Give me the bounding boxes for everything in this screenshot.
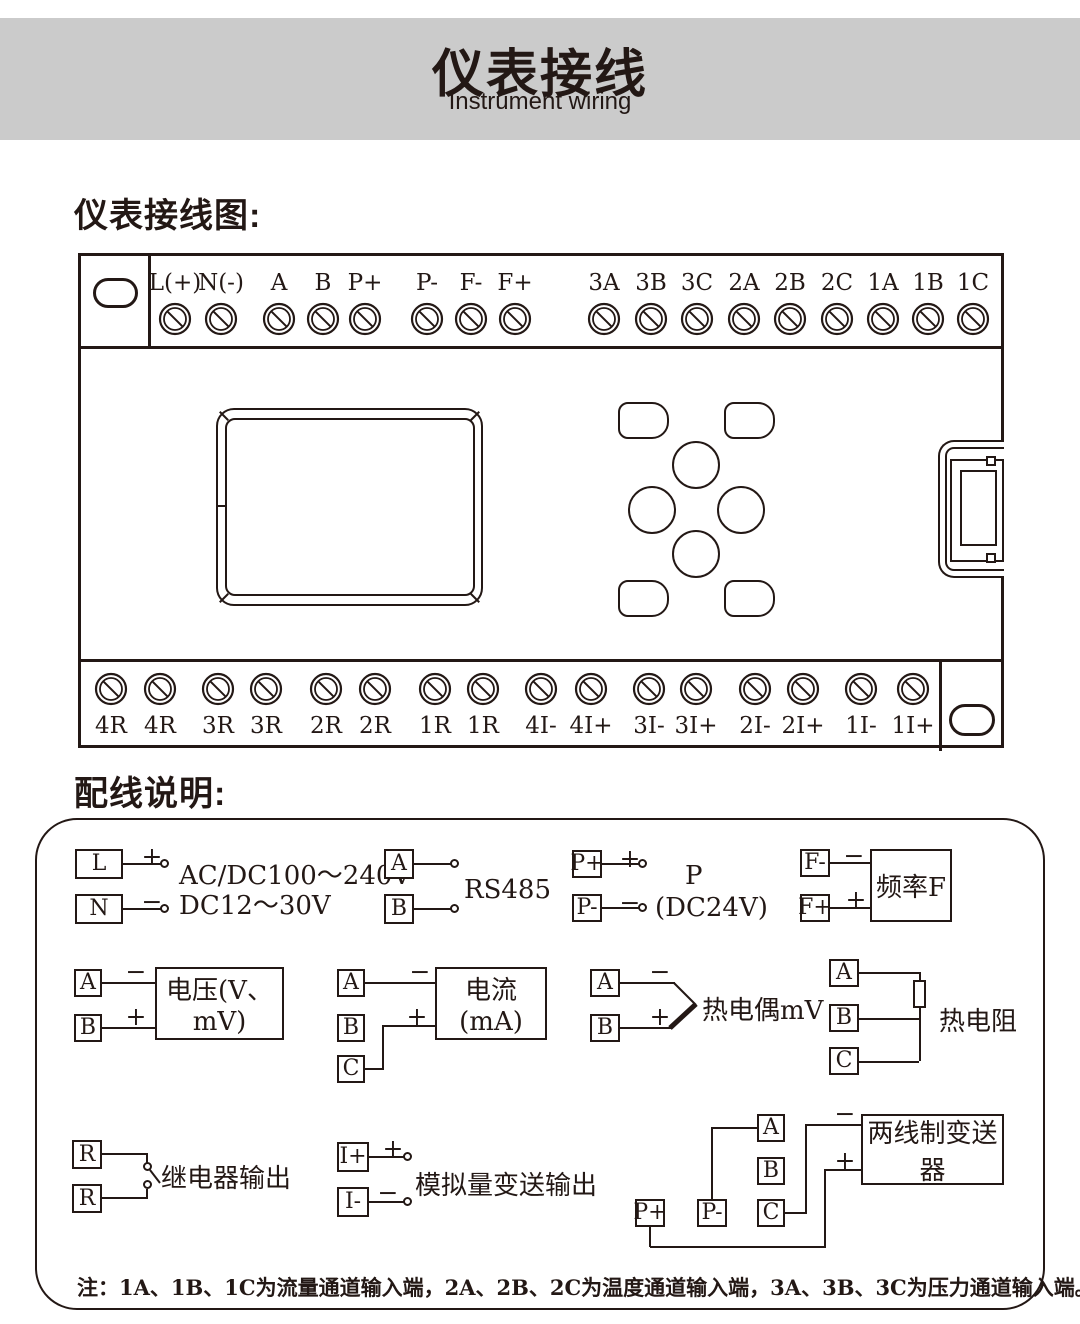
wire <box>102 1153 148 1155</box>
wire <box>414 863 454 865</box>
screw-terminal-icon <box>94 672 128 706</box>
keypad-round-button-down <box>672 530 720 578</box>
resistor-symbol <box>913 980 926 1008</box>
wire-end-node <box>403 1197 412 1206</box>
screw-terminal-icon <box>204 302 238 336</box>
screw-terminal-icon <box>773 302 807 336</box>
plus-sign: + <box>121 1004 151 1029</box>
power-range-line1: AC/DC100～240V <box>179 862 411 892</box>
minus-sign: − <box>121 959 151 984</box>
bottom-terminals: 4R4R3R3R2R2R1R1R4I-4I+3I-3I+2I-2I+1I-1I+ <box>81 660 1001 751</box>
plus-sign: + <box>615 846 645 871</box>
wire <box>414 908 454 910</box>
minus-sign: − <box>373 1180 403 1205</box>
terminal-label: 1I+ <box>885 712 941 740</box>
terminal-box-B: B <box>829 1004 859 1032</box>
wiring-heading: 配线说明: <box>74 766 226 815</box>
terminal-box-I-plus: I+ <box>337 1142 369 1172</box>
terminal-box-F-plus: F+ <box>800 894 830 922</box>
plus-sign: + <box>402 1004 432 1029</box>
screw-terminal-icon <box>201 672 235 706</box>
terminal-label: 1R <box>455 712 511 740</box>
screw-terminal-icon <box>786 672 820 706</box>
terminal-box-C: C <box>757 1199 785 1227</box>
plus-sign: + <box>841 887 871 912</box>
terminal-bottom-15: 1I+ <box>885 660 941 740</box>
top-strip-divider-line <box>81 346 1001 349</box>
terminal-top-7: F+ <box>487 256 543 336</box>
screw-terminal-icon <box>249 672 283 706</box>
screw-terminal-icon <box>679 672 713 706</box>
terminal-box-F-minus: F- <box>800 849 830 877</box>
p24-line2: (DC24V) <box>655 894 768 924</box>
terminal-bottom-11: 3I+ <box>668 660 724 740</box>
terminal-label: 2R <box>347 712 403 740</box>
wire <box>805 1125 807 1214</box>
terminal-label: F+ <box>487 269 543 297</box>
terminal-bottom-1: 4R <box>132 660 188 740</box>
screw-terminal-icon <box>158 302 192 336</box>
wiring-explanation-box: L N + − AC/DC100～240V DC12～30V A B RS485… <box>35 818 1045 1310</box>
minus-sign: − <box>615 890 645 915</box>
page-subtitle: Instrument wiring <box>0 88 1080 116</box>
terminal-label: 4R <box>132 712 188 740</box>
terminal-box-A: A <box>757 1114 785 1142</box>
keypad-round-button-left <box>628 486 676 534</box>
screw-terminal-icon <box>820 302 854 336</box>
transmitter-device-box: 两线制变送器 <box>861 1114 1004 1185</box>
terminal-label: 3I+ <box>668 712 724 740</box>
minus-sign: − <box>405 959 435 984</box>
side-connector-pin-top <box>986 456 996 466</box>
wire <box>711 1128 713 1199</box>
wire <box>859 1061 919 1063</box>
screw-terminal-icon <box>466 672 500 706</box>
terminal-box-R: R <box>72 1184 102 1213</box>
terminal-box-P-minus: P- <box>572 894 602 922</box>
voltage-device-box: 电压(V、mV) <box>155 967 284 1040</box>
minus-sign: − <box>645 959 675 984</box>
screw-terminal-icon <box>587 302 621 336</box>
frequency-device-box: 频率F <box>870 849 952 922</box>
keypad-button-top-right <box>724 402 775 439</box>
screw-terminal-icon <box>896 672 930 706</box>
wire-end-node <box>450 859 459 868</box>
terminal-box-P-minus: P- <box>697 1199 727 1227</box>
screw-terminal-icon <box>143 672 177 706</box>
wiring-note: 注：1A、1B、1C为流量通道输入端，2A、2B、2C为温度通道输入端，3A、3… <box>77 1272 1037 1302</box>
power-range-line2: DC12～30V <box>179 892 331 922</box>
screw-terminal-icon <box>680 302 714 336</box>
screw-terminal-icon <box>309 672 343 706</box>
screw-terminal-icon <box>956 302 990 336</box>
terminal-label: N(-) <box>193 269 249 297</box>
screw-terminal-icon <box>306 302 340 336</box>
instrument-wiring-diagram: L(+)N(-)ABP+P-F-F+3A3B3C2A2B2C1A1B1C 4R4… <box>78 253 1004 748</box>
terminal-label: 2I+ <box>775 712 831 740</box>
screw-terminal-icon <box>634 302 668 336</box>
wire <box>824 1169 826 1248</box>
terminal-label: 3R <box>238 712 294 740</box>
screw-terminal-icon <box>911 302 945 336</box>
terminal-box-B: B <box>74 1014 102 1042</box>
wire <box>650 1246 826 1248</box>
terminal-box-A: A <box>337 969 365 997</box>
screw-terminal-icon <box>632 672 666 706</box>
wire <box>859 972 921 974</box>
terminal-bottom-14: 1I- <box>833 660 889 740</box>
terminal-label: 1C <box>945 269 1001 297</box>
terminal-label: P+ <box>337 269 393 297</box>
terminal-label: 1I- <box>833 712 889 740</box>
terminal-label: 4I- <box>513 712 569 740</box>
analog-out-label: 模拟量变送输出 <box>415 1172 597 1202</box>
screw-terminal-icon <box>498 302 532 336</box>
terminal-bottom-9: 4I+ <box>563 660 619 740</box>
terminal-box-A: A <box>74 969 102 997</box>
rtd-label: 热电阻 <box>939 1008 1017 1038</box>
screw-terminal-icon <box>738 672 772 706</box>
terminal-box-C: C <box>829 1047 859 1075</box>
terminal-box-I-minus: I- <box>337 1187 369 1217</box>
terminal-top-1: N(-) <box>193 256 249 336</box>
terminal-label: 2R <box>298 712 354 740</box>
thermocouple-label: 热电偶mV <box>702 997 823 1027</box>
terminal-label: 4R <box>83 712 139 740</box>
wire-end-node <box>450 904 459 913</box>
keypad-round-button-up <box>672 441 720 489</box>
terminal-box-C: C <box>337 1055 365 1083</box>
screw-terminal-icon <box>727 302 761 336</box>
terminal-bottom-0: 4R <box>83 660 139 740</box>
keypad-button-top-left <box>618 402 669 439</box>
terminal-bottom-4: 2R <box>298 660 354 740</box>
terminal-label: 4I+ <box>563 712 619 740</box>
wire <box>859 1018 919 1020</box>
plus-sign: + <box>830 1148 860 1173</box>
plus-sign: + <box>137 844 167 869</box>
screw-terminal-icon <box>418 672 452 706</box>
bezel-mid-tick <box>216 505 225 507</box>
current-device-box: 电流(mA) <box>435 967 547 1040</box>
screw-terminal-icon <box>844 672 878 706</box>
display-screen <box>225 418 475 596</box>
terminal-box-L: L <box>75 849 123 879</box>
screw-terminal-icon <box>454 302 488 336</box>
relay-label: 继电器输出 <box>161 1165 291 1195</box>
terminal-bottom-5: 2R <box>347 660 403 740</box>
terminal-box-R: R <box>72 1140 102 1169</box>
keypad-button-bottom-right <box>724 580 775 617</box>
terminal-box-B: B <box>384 894 414 924</box>
terminal-top-4: P+ <box>337 256 393 336</box>
terminal-box-A: A <box>590 969 620 997</box>
side-connector-pin-bottom <box>986 553 996 563</box>
wire <box>649 1227 651 1247</box>
rs485-label: RS485 <box>464 876 551 906</box>
terminal-box-P-plus: P+ <box>635 1199 665 1227</box>
screw-terminal-icon <box>262 302 296 336</box>
terminal-box-N: N <box>75 894 123 924</box>
plus-sign: + <box>645 1004 675 1029</box>
minus-sign: − <box>830 1101 860 1126</box>
top-terminal-strip: L(+)N(-)ABP+P-F-F+3A3B3C2A2B2C1A1B1C <box>81 256 1001 346</box>
plus-sign: + <box>378 1136 408 1161</box>
minus-sign: − <box>839 843 869 868</box>
screw-terminal-icon <box>348 302 382 336</box>
terminal-top-16: 1C <box>945 256 1001 336</box>
keypad-button-bottom-left <box>618 580 669 617</box>
p24-line1: P <box>685 862 703 892</box>
screw-terminal-icon <box>358 672 392 706</box>
terminal-box-A: A <box>384 849 414 879</box>
terminal-box-B: B <box>757 1157 785 1185</box>
wire <box>102 1197 148 1199</box>
terminal-bottom-3: 3R <box>238 660 294 740</box>
terminal-bottom-8: 4I- <box>513 660 569 740</box>
top-terminals: L(+)N(-)ABP+P-F-F+3A3B3C2A2B2C1A1B1C <box>81 256 1001 346</box>
side-connector-slot <box>960 470 997 546</box>
diagram-heading: 仪表接线图: <box>74 188 261 237</box>
wire <box>785 1212 807 1214</box>
terminal-box-B: B <box>337 1014 365 1042</box>
terminal-box-B: B <box>590 1014 620 1042</box>
screw-terminal-icon <box>866 302 900 336</box>
screw-terminal-icon <box>574 672 608 706</box>
keypad-round-button-right <box>717 486 765 534</box>
terminal-box-A: A <box>829 959 859 987</box>
minus-sign: − <box>137 889 167 914</box>
screw-terminal-icon <box>524 672 558 706</box>
bottom-terminal-strip: 4R4R3R3R2R2R1R1R4I-4I+3I-3I+2I-2I+1I-1I+ <box>81 660 1001 751</box>
screw-terminal-icon <box>410 302 444 336</box>
wire <box>711 1127 757 1129</box>
wire <box>146 1189 148 1199</box>
wire <box>382 1025 384 1070</box>
terminal-bottom-7: 1R <box>455 660 511 740</box>
terminal-bottom-13: 2I+ <box>775 660 831 740</box>
terminal-box-P-plus: P+ <box>572 850 602 878</box>
